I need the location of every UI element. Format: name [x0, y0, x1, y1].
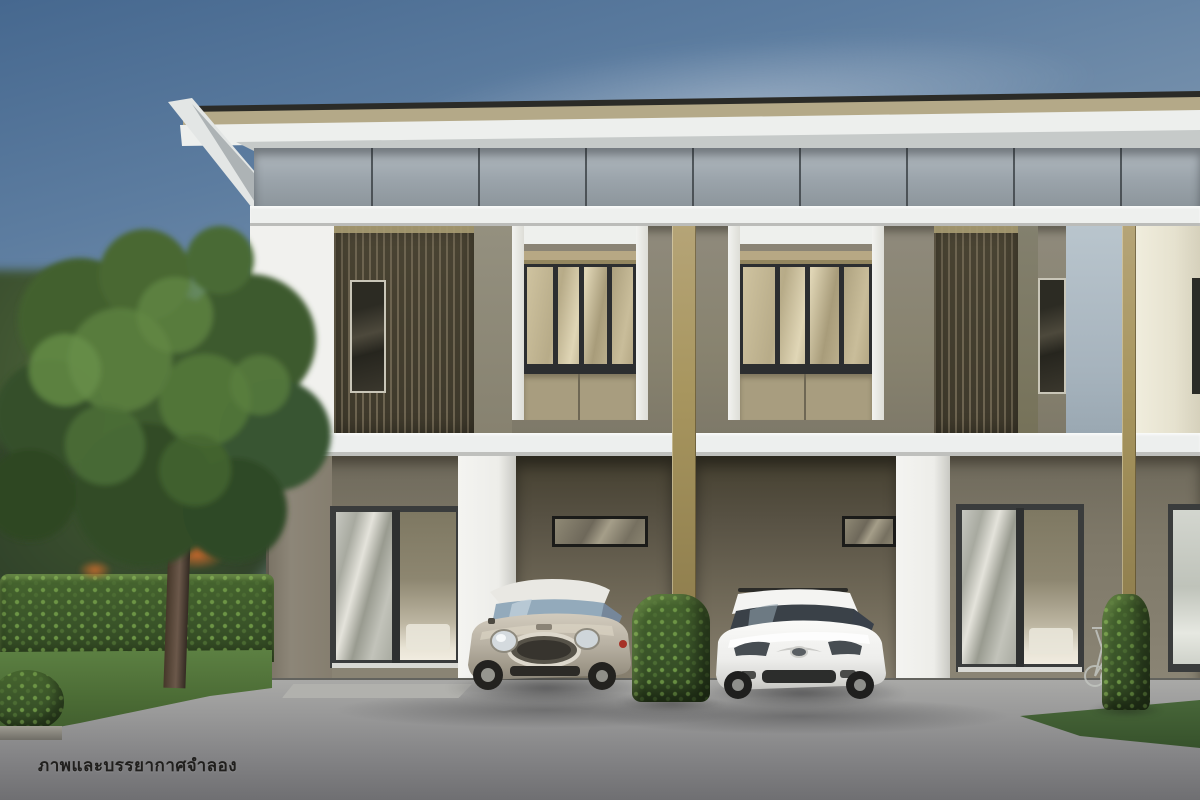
window-trim	[872, 226, 884, 420]
roller-shade	[740, 244, 872, 264]
carport-window	[842, 516, 896, 547]
window-trim	[512, 226, 524, 420]
white-mazda-car	[706, 584, 892, 702]
second-floor-facade	[250, 226, 1200, 433]
entry-step	[282, 684, 472, 698]
blue-grey-panel	[1066, 226, 1122, 433]
upper-white-band	[250, 206, 1200, 226]
column-shrub	[1102, 594, 1150, 710]
garden-tree	[0, 220, 370, 600]
grey-wall-strip	[474, 226, 512, 433]
door-glass	[400, 512, 456, 660]
bedroom-window-right-unit	[728, 226, 884, 420]
white-column	[896, 456, 950, 688]
garden-curb	[0, 726, 62, 740]
parapet-panels	[254, 148, 1200, 208]
louver-screen	[934, 226, 1018, 433]
window-trim	[512, 226, 648, 244]
silver-mini-car	[452, 576, 636, 696]
olive-wall-strip	[1018, 226, 1038, 433]
window-glass	[740, 264, 872, 374]
roller-shade	[524, 244, 636, 264]
spandrel-panels	[740, 374, 872, 420]
sliding-glass-door-right-unit	[956, 504, 1084, 672]
interior-sofa	[1029, 628, 1073, 654]
door-glass	[962, 510, 1016, 664]
cream-panel	[1136, 226, 1200, 433]
spandrel-panels	[524, 374, 636, 420]
window-trim	[728, 226, 740, 420]
narrow-window	[1038, 278, 1066, 394]
window-trim	[636, 226, 648, 420]
sliding-glass-door-partial	[1168, 504, 1200, 672]
carport-window	[552, 516, 648, 547]
interior-sofa	[406, 624, 450, 650]
narrow-window-partial	[1192, 278, 1200, 394]
window-glass	[524, 264, 636, 374]
window-trim	[728, 226, 884, 244]
floor-divider-band	[250, 433, 1200, 456]
watermark-text: ภาพและบรรยากาศจำลอง	[38, 752, 237, 779]
door-glass	[1024, 510, 1078, 664]
architectural-rendering: ภาพและบรรยากาศจำลอง	[0, 0, 1200, 800]
bedroom-window-left-unit	[512, 226, 648, 420]
